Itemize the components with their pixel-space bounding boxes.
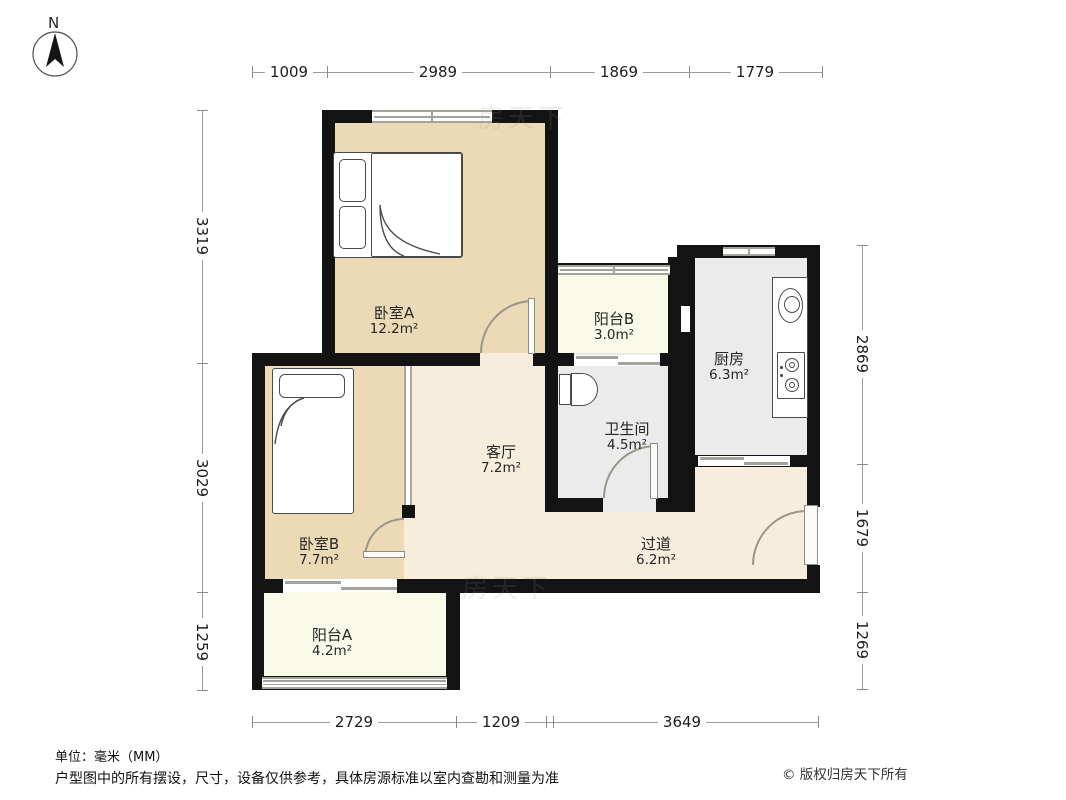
wall-balconyA-left <box>252 579 264 690</box>
wall-bathroom-bottom-right <box>656 498 680 512</box>
room-name: 卫生间 <box>604 421 649 437</box>
sink-drain <box>784 296 800 313</box>
units-note: 单位：毫米（MM） <box>55 746 168 765</box>
wall-right-upper <box>807 245 820 507</box>
room-area: 4.5m² <box>604 437 649 453</box>
door-leaf-bathroom <box>650 443 658 499</box>
room-name: 阳台B <box>594 311 634 327</box>
room-area: 6.3m² <box>709 367 749 383</box>
dim-tick <box>197 592 208 593</box>
dim-tick <box>197 690 208 691</box>
dim-tick <box>822 66 823 78</box>
dim-left-2: 3029 <box>193 454 211 502</box>
window-balconyA-line-1 <box>263 680 446 682</box>
window-bathroom-pane-1 <box>576 356 618 359</box>
label-bedroom-a: 卧室A 12.2m² <box>370 305 419 337</box>
compass: N <box>28 10 88 90</box>
dim-tick <box>857 245 868 246</box>
wall-bathroom-bottom-left <box>545 498 603 512</box>
room-name: 厨房 <box>709 351 749 367</box>
window-kitchen-tick <box>748 248 750 255</box>
dim-tick <box>553 716 554 728</box>
dim-top-3: 1869 <box>595 63 643 81</box>
dim-tick <box>550 66 551 78</box>
wall-mid-horizontal-left <box>252 353 480 366</box>
room-name: 客厅 <box>481 444 521 460</box>
toilet-tank <box>559 374 571 405</box>
disclaimer: 户型图中的所有摆设，尺寸，设备仅供参考，具体房源标准以室内查勘和测量为准 <box>55 768 559 788</box>
room-balcony-a <box>258 579 453 690</box>
north-label: N <box>48 14 59 32</box>
room-area: 4.2m² <box>312 643 352 659</box>
dim-bottom-2: 1209 <box>477 713 525 731</box>
label-balcony-b: 阳台B 3.0m² <box>594 311 634 343</box>
room-name: 卧室A <box>370 305 419 321</box>
dim-tick <box>197 363 208 364</box>
window-balconyA-line-2 <box>263 684 446 686</box>
pillow <box>339 159 366 202</box>
north-arrow-icon <box>28 26 84 82</box>
stove-knob <box>780 366 783 369</box>
wall-bedroomA-right <box>545 110 558 366</box>
sliding-door-panel-2 <box>744 462 788 465</box>
dim-bottom-3: 3649 <box>658 713 706 731</box>
dim-tick <box>857 464 868 465</box>
floorplan-canvas: 卧室A 12.2m² 阳台B 3.0m² 厨房 6.3m² 卫生间 4.5m² … <box>0 0 1066 800</box>
room-name: 卧室B <box>299 536 339 552</box>
dim-line-left <box>202 110 203 690</box>
label-hallway: 过道 6.2m² <box>636 536 676 568</box>
dim-tick <box>857 689 868 690</box>
label-bedroom-b: 卧室B 7.7m² <box>299 536 339 568</box>
label-bathroom: 卫生间 4.5m² <box>604 421 649 453</box>
burner-center <box>789 362 795 368</box>
window-bedroomB-pane-2 <box>341 587 397 590</box>
door-leaf-entry <box>804 505 818 565</box>
wall-kitchen-bathroom <box>668 257 695 512</box>
door-leaf-bedroom-b <box>363 551 405 558</box>
dim-tick <box>689 66 690 78</box>
label-kitchen: 厨房 6.3m² <box>709 351 749 383</box>
wall-bathroom-top-left <box>558 353 574 366</box>
blanket-fold <box>272 396 318 448</box>
door-leaf-bedroom-a <box>528 298 535 354</box>
wall-right-lower <box>807 565 820 593</box>
label-living: 客厅 7.2m² <box>481 444 521 476</box>
pillow <box>279 374 345 398</box>
dim-tick <box>197 110 208 111</box>
kitchen-flue-notch <box>681 306 690 332</box>
room-name: 过道 <box>636 536 676 552</box>
dim-left-1: 3319 <box>193 212 211 260</box>
room-hallway-upper <box>695 460 807 512</box>
room-area: 3.0m² <box>594 327 634 343</box>
room-name: 阳台A <box>312 627 352 643</box>
dim-tick <box>456 716 457 728</box>
window-bathroom-pane-2 <box>618 362 660 365</box>
dim-tick <box>252 716 253 728</box>
dim-left-3: 1259 <box>193 618 211 666</box>
blanket-fold <box>370 203 445 259</box>
wall-balconyA-right <box>446 579 460 690</box>
label-balcony-a: 阳台A 4.2m² <box>312 627 352 659</box>
room-area: 12.2m² <box>370 321 419 337</box>
dim-top-1: 1009 <box>265 63 313 81</box>
window-bedroomB-pane-1 <box>285 581 341 584</box>
dim-top-2: 2989 <box>414 63 462 81</box>
dim-tick <box>857 592 868 593</box>
wall-bathroom-left <box>545 353 558 512</box>
dim-tick <box>252 66 253 78</box>
dim-tick <box>818 716 819 728</box>
wall-bedroomB-left <box>252 353 265 592</box>
sliding-door-panel-1 <box>700 457 744 460</box>
wall-bedroomB-door-post <box>402 505 415 518</box>
dim-right-2: 1679 <box>853 504 871 552</box>
window-balconyB-tick <box>613 266 615 274</box>
room-area: 6.2m² <box>636 552 676 568</box>
burner-center <box>789 382 795 388</box>
dim-tick <box>327 66 328 78</box>
room-area: 7.2m² <box>481 460 521 476</box>
dim-tick <box>546 716 547 728</box>
copyright: © 版权归房天下所有 <box>782 763 908 783</box>
dim-right-1: 2869 <box>853 330 871 378</box>
partition-bedroomB-right <box>404 366 412 506</box>
pillow <box>339 206 366 249</box>
window-bedroomA-tick <box>431 111 433 122</box>
dim-bottom-1: 2729 <box>330 713 378 731</box>
dim-top-4: 1779 <box>731 63 779 81</box>
dim-right-3: 1269 <box>853 616 871 664</box>
stove-knob <box>780 374 783 377</box>
room-area: 7.7m² <box>299 552 339 568</box>
